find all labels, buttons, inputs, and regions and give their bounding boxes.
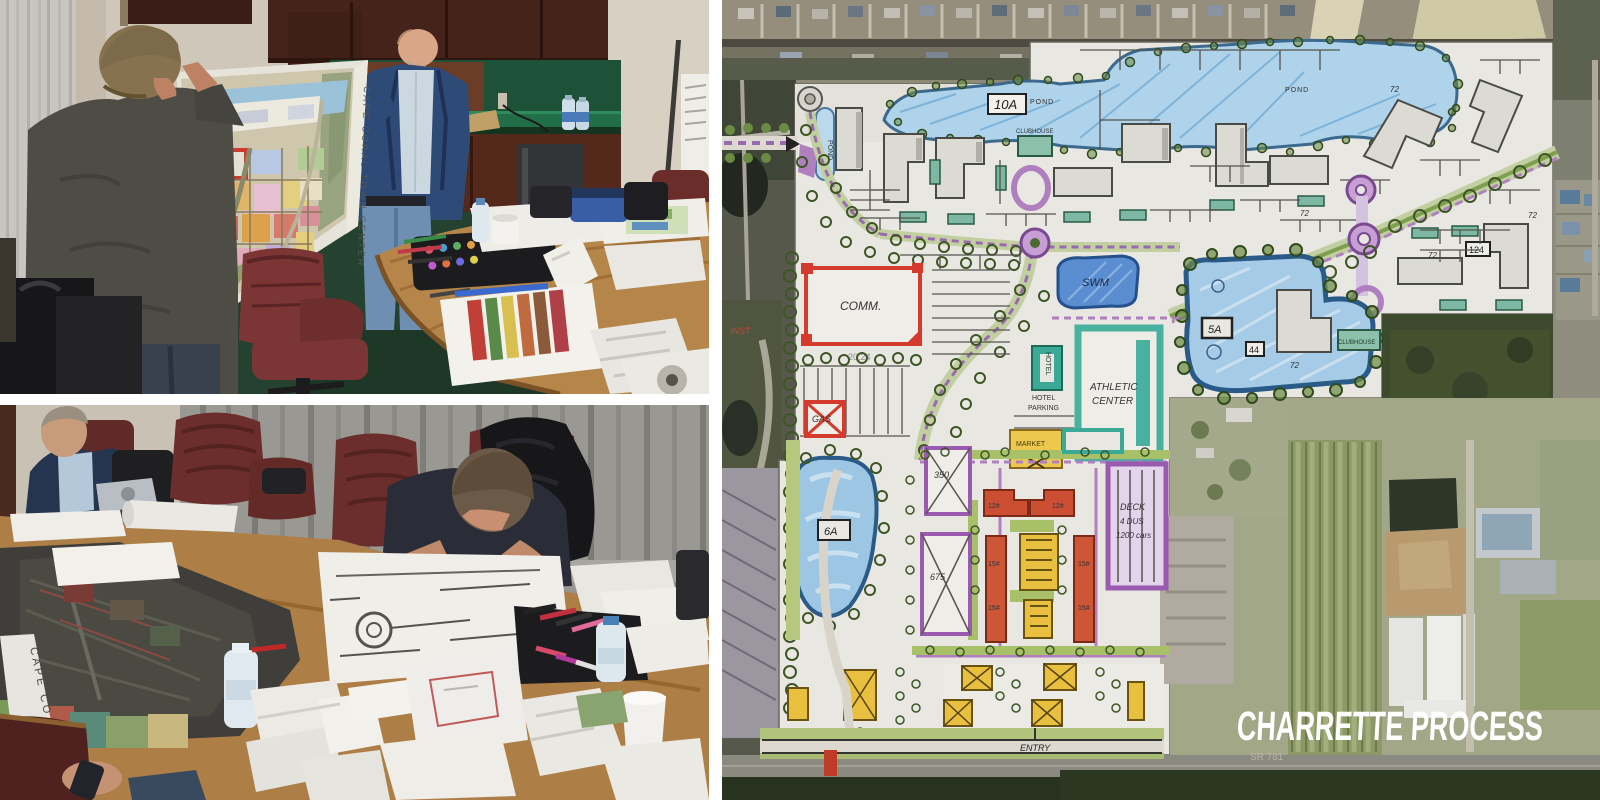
- svg-text:HOTEL: HOTEL: [1044, 352, 1051, 375]
- svg-text:POND: POND: [1030, 99, 1054, 106]
- svg-text:CHARRETTE PROCESS: CHARRETTE PROCESS: [1236, 703, 1544, 749]
- svg-text:CENTER: CENTER: [1092, 396, 1133, 407]
- svg-text:1200 cars: 1200 cars: [1116, 531, 1151, 540]
- svg-text:MARKET: MARKET: [1016, 441, 1046, 448]
- svg-text:SR 781: SR 781: [1250, 752, 1284, 763]
- svg-text:GAS: GAS: [812, 414, 831, 424]
- svg-text:5A: 5A: [1208, 324, 1221, 336]
- svg-text:72: 72: [1428, 251, 1437, 260]
- svg-text:72: 72: [1528, 211, 1537, 220]
- svg-text:INST: INST: [730, 326, 752, 336]
- svg-text:CLUBHOUSE: CLUBHOUSE: [1016, 129, 1053, 135]
- svg-text:10A: 10A: [994, 97, 1017, 112]
- svg-text:350: 350: [934, 470, 949, 480]
- svg-text:12#: 12#: [988, 503, 1000, 510]
- svg-text:POND: POND: [1285, 87, 1309, 94]
- svg-text:12#: 12#: [1052, 503, 1064, 510]
- svg-text:DECK: DECK: [1120, 502, 1146, 512]
- svg-text:675: 675: [930, 572, 946, 582]
- svg-text:44: 44: [1249, 345, 1259, 355]
- svg-text:ATHLETIC: ATHLETIC: [1089, 382, 1138, 393]
- svg-text:4 DUS: 4 DUS: [1120, 517, 1144, 526]
- svg-text:ENTRY: ENTRY: [1020, 743, 1051, 753]
- svg-text:15#: 15#: [988, 561, 1000, 568]
- svg-text:15#: 15#: [1078, 605, 1090, 612]
- svg-text:72: 72: [1290, 361, 1299, 370]
- svg-text:COMM.: COMM.: [840, 299, 881, 313]
- svg-text:6A: 6A: [824, 526, 837, 538]
- svg-text:HOTEL: HOTEL: [1032, 395, 1055, 402]
- svg-text:SWM: SWM: [1082, 277, 1110, 289]
- svg-text:72: 72: [1300, 209, 1309, 218]
- svg-text:15#: 15#: [1078, 561, 1090, 568]
- svg-text:CLUBHOUSE: CLUBHOUSE: [1338, 340, 1375, 346]
- svg-text:72: 72: [1390, 85, 1399, 94]
- svg-text:15#: 15#: [988, 605, 1000, 612]
- svg-text:PARKING: PARKING: [1028, 405, 1059, 412]
